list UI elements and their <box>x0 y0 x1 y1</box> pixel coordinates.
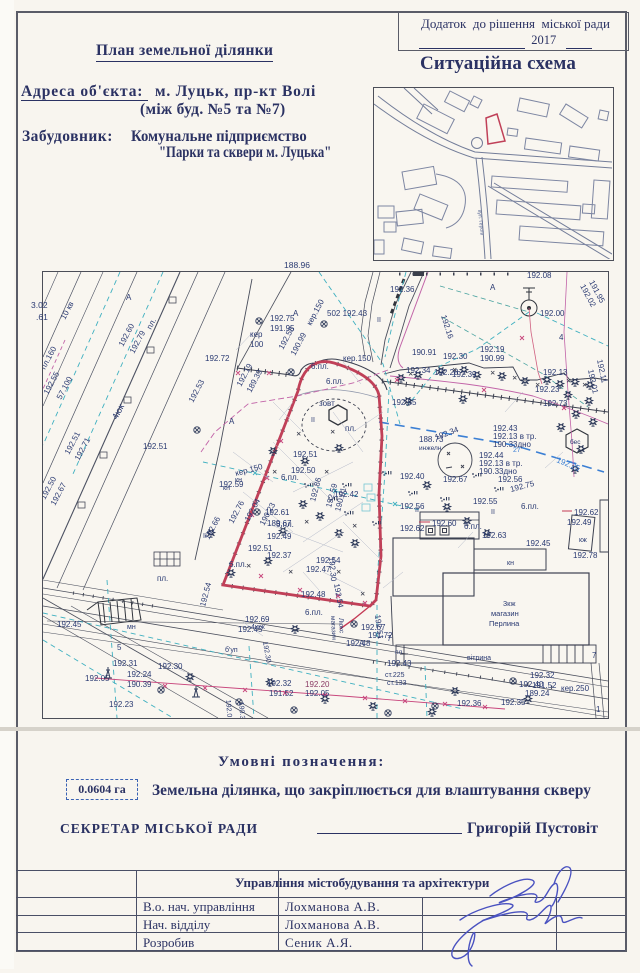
svg-text:6.пл.: 6.пл. <box>229 560 247 569</box>
svg-text:1: 1 <box>596 705 601 714</box>
svg-text:190.3: 190.3 <box>237 702 246 718</box>
svg-text:II: II <box>203 533 207 540</box>
svg-text:192.0: 192.0 <box>224 700 233 718</box>
svg-text:192.36: 192.36 <box>457 699 482 708</box>
svg-text:192.20: 192.20 <box>305 680 330 689</box>
svg-text:пл.160: пл.160 <box>43 345 59 371</box>
svg-text:192.32: 192.32 <box>267 679 292 688</box>
svg-text:27: 27 <box>513 447 521 454</box>
svg-text:пл.: пл. <box>157 574 168 583</box>
svg-text:кер.250: кер.250 <box>561 684 590 693</box>
svg-text:5: 5 <box>117 643 122 652</box>
svg-text:192.40: 192.40 <box>400 472 425 481</box>
svg-text:6.пл.: 6.пл. <box>305 608 323 617</box>
svg-text:7: 7 <box>592 651 597 660</box>
svg-text:4: 4 <box>559 333 564 342</box>
svg-text:192.60: 192.60 <box>432 519 457 528</box>
svg-text:вітрина: вітрина <box>467 654 491 662</box>
svg-text:6.пл.: 6.пл. <box>521 502 539 511</box>
svg-text:192.49: 192.49 <box>267 532 292 541</box>
svg-text:192.05: 192.05 <box>305 689 330 698</box>
svg-text:192.55: 192.55 <box>473 497 498 506</box>
svg-text:магазин: магазин <box>491 609 519 618</box>
svg-text:ст.133: ст.133 <box>387 680 407 687</box>
svg-text:Перлина: Перлина <box>489 619 520 628</box>
svg-text:II: II <box>491 509 495 516</box>
svg-text:инжелн: инжелн <box>419 445 442 452</box>
svg-text:192.76: 192.76 <box>227 499 247 525</box>
svg-text:вул. Героїв: вул. Героїв <box>476 210 485 236</box>
svg-text:II: II <box>415 507 419 514</box>
svg-text:192.34: 192.34 <box>406 366 431 375</box>
svg-text:6.пл.: 6.пл. <box>464 522 482 531</box>
svg-text:А: А <box>126 293 132 302</box>
svg-text:191.52: 191.52 <box>269 689 294 698</box>
svg-text:кж: кж <box>579 537 587 544</box>
svg-text:II: II <box>311 417 315 424</box>
svg-text:189.24: 189.24 <box>525 689 550 698</box>
svg-text:192.32: 192.32 <box>530 671 555 680</box>
svg-text:6.пл.: 6.пл. <box>311 362 329 371</box>
svg-text:190.39: 190.39 <box>127 680 152 689</box>
svg-text:192.50: 192.50 <box>291 466 316 475</box>
svg-text:190.99: 190.99 <box>480 354 505 363</box>
svg-text:192.45: 192.45 <box>526 539 551 548</box>
svg-text:192.16: 192.16 <box>439 314 455 341</box>
svg-text:II: II <box>377 317 381 324</box>
svg-text:502 192.43: 502 192.43 <box>327 309 368 318</box>
svg-text:192.53: 192.53 <box>187 378 207 404</box>
svg-text:192.54: 192.54 <box>332 583 345 609</box>
svg-text:192.24: 192.24 <box>127 670 152 679</box>
svg-text:192.69: 192.69 <box>245 615 270 624</box>
svg-text:192.62: 192.62 <box>400 524 425 533</box>
svg-text:3кж: 3кж <box>503 599 515 608</box>
svg-text:А: А <box>490 283 496 292</box>
svg-text:зовт: зовт <box>319 399 335 408</box>
svg-text:6.пл.: 6.пл. <box>326 377 344 386</box>
svg-text:192.35: 192.35 <box>501 698 526 707</box>
svg-text:А: А <box>293 309 299 318</box>
svg-text:192.55: 192.55 <box>392 398 417 407</box>
svg-text:192.67: 192.67 <box>443 475 468 484</box>
svg-text:100: 100 <box>250 340 264 349</box>
svg-text:192.45: 192.45 <box>57 620 82 629</box>
svg-text:пл: пл <box>395 649 403 656</box>
svg-text:4юж: 4юж <box>251 624 265 631</box>
svg-text:Люкс: Люкс <box>337 618 345 634</box>
svg-text:192.86: 192.86 <box>308 476 323 502</box>
svg-text:192.49: 192.49 <box>567 518 592 527</box>
svg-text:192.56: 192.56 <box>400 502 425 511</box>
svg-text:192.00: 192.00 <box>540 309 565 318</box>
svg-text:кер.150: кер.150 <box>343 354 372 363</box>
svg-text:пл.: пл. <box>145 317 158 331</box>
svg-text:мн: мн <box>127 624 136 631</box>
svg-text:4юк: 4юк <box>110 402 126 421</box>
svg-text:192.43: 192.43 <box>387 659 412 668</box>
svg-text:192.48: 192.48 <box>346 639 371 648</box>
svg-text:192.54: 192.54 <box>198 581 213 607</box>
svg-text:192.19: 192.19 <box>480 345 505 354</box>
svg-text:192.42: 192.42 <box>334 490 359 499</box>
svg-text:192.59: 192.59 <box>219 480 244 489</box>
svg-text:192.73: 192.73 <box>543 399 568 408</box>
svg-text:192.62: 192.62 <box>574 508 599 517</box>
svg-text:А: А <box>229 417 235 426</box>
svg-text:пл.: пл. <box>345 424 356 433</box>
svg-text:б'уп: б'уп <box>225 646 238 654</box>
svg-text:192.36: 192.36 <box>390 285 415 294</box>
svg-text:192.08: 192.08 <box>527 272 552 280</box>
svg-text:192.23: 192.23 <box>535 385 560 394</box>
svg-text:190.91: 190.91 <box>412 348 437 357</box>
svg-text:192.72: 192.72 <box>205 354 230 363</box>
svg-text:192.31: 192.31 <box>113 659 138 668</box>
svg-text:10 кв: 10 кв <box>59 300 76 321</box>
svg-text:191.52: 191.52 <box>532 681 557 690</box>
svg-text:кер: кер <box>250 330 263 339</box>
svg-text:кер.150: кер.150 <box>234 462 264 478</box>
svg-text:7: 7 <box>387 634 392 643</box>
svg-text:192.63: 192.63 <box>482 531 507 540</box>
svg-text:192.30: 192.30 <box>443 352 468 361</box>
svg-text:192.30: 192.30 <box>327 556 338 582</box>
svg-text:192.13: 192.13 <box>543 368 568 377</box>
svg-text:192.75: 192.75 <box>270 314 295 323</box>
svg-text:192.51: 192.51 <box>143 442 168 451</box>
svg-text:магазин: магазин <box>329 616 337 641</box>
svg-text:192.34: 192.34 <box>434 425 461 442</box>
svg-text:6.пл.: 6.пл. <box>276 520 294 529</box>
svg-text:бес: бес <box>570 438 581 446</box>
svg-text:192.47: 192.47 <box>306 565 331 574</box>
svg-text:192.61: 192.61 <box>265 508 290 517</box>
svg-text:кн: кн <box>507 560 514 567</box>
svg-text:192.39: 192.39 <box>452 370 477 379</box>
svg-text:192.30: 192.30 <box>158 662 183 671</box>
svg-text:192.25: 192.25 <box>555 456 582 474</box>
svg-text:192.78: 192.78 <box>573 551 598 560</box>
svg-text:192.51: 192.51 <box>293 450 318 459</box>
svg-text:192.23: 192.23 <box>109 700 134 709</box>
svg-text:ст.225: ст.225 <box>385 672 405 679</box>
svg-text:192.37: 192.37 <box>267 551 292 560</box>
svg-text:192.48: 192.48 <box>301 590 326 599</box>
